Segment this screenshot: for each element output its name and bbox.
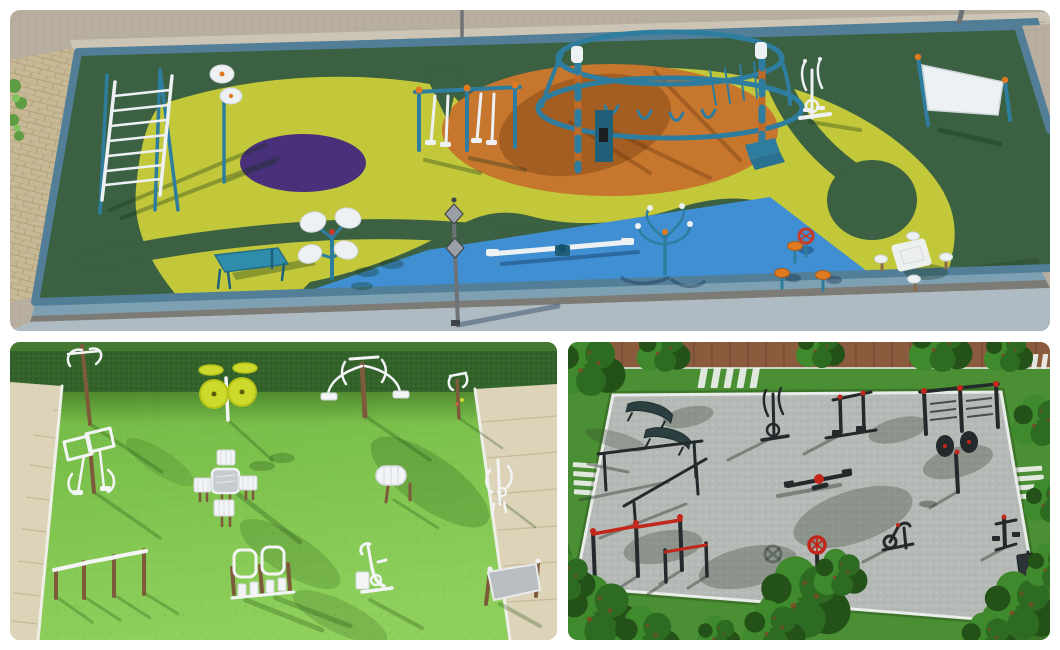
panel-playground-top <box>10 10 1050 331</box>
scene-playground <box>10 10 1050 331</box>
render-collage <box>0 0 1060 650</box>
scene-lawn-gym <box>10 342 557 640</box>
panel-gravel-workout <box>568 342 1050 640</box>
panel-lawn-gym <box>10 342 557 640</box>
purple-circle <box>240 134 366 192</box>
scene-gravel-workout <box>568 342 1050 640</box>
